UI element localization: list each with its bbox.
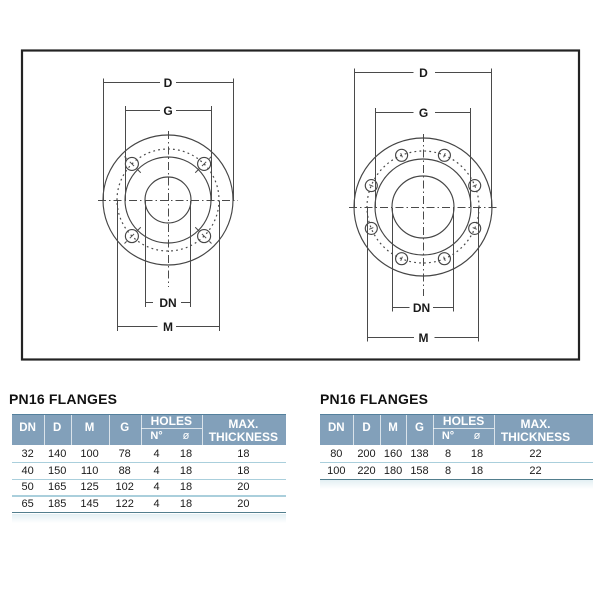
svg-text:G: G	[163, 104, 172, 118]
svg-text:DN: DN	[413, 301, 430, 315]
svg-text:D: D	[419, 66, 428, 80]
svg-text:G: G	[419, 106, 428, 120]
svg-text:M: M	[163, 320, 173, 334]
svg-text:DN: DN	[159, 296, 176, 310]
svg-text:M: M	[419, 331, 429, 345]
svg-text:D: D	[164, 76, 173, 90]
